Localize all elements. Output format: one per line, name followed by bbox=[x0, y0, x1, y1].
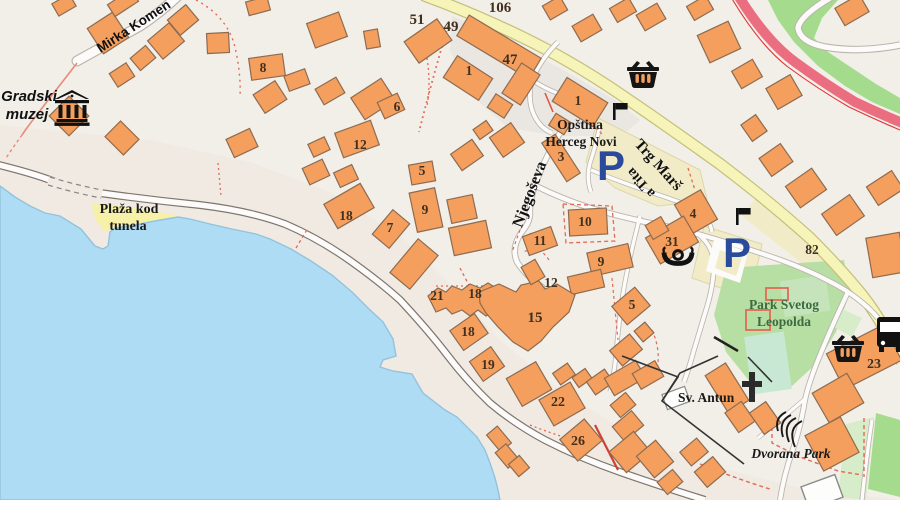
svg-text:muzej: muzej bbox=[6, 106, 49, 123]
svg-text:51: 51 bbox=[410, 12, 425, 28]
svg-text:10: 10 bbox=[578, 214, 592, 229]
svg-text:18: 18 bbox=[339, 208, 353, 223]
svg-text:1: 1 bbox=[466, 63, 473, 78]
svg-text:23: 23 bbox=[867, 357, 881, 372]
svg-text:12: 12 bbox=[544, 275, 558, 290]
svg-text:21: 21 bbox=[430, 288, 444, 303]
svg-text:Sv. Antun: Sv. Antun bbox=[678, 390, 735, 405]
svg-text:Opština: Opština bbox=[557, 117, 603, 132]
svg-text:P: P bbox=[597, 142, 625, 189]
svg-text:18: 18 bbox=[461, 324, 475, 339]
svg-text:3: 3 bbox=[558, 149, 565, 164]
svg-text:4: 4 bbox=[690, 206, 697, 221]
svg-text:49: 49 bbox=[444, 19, 459, 35]
svg-text:12: 12 bbox=[353, 137, 367, 152]
svg-text:82: 82 bbox=[805, 242, 819, 257]
svg-text:11: 11 bbox=[534, 233, 547, 248]
svg-text:Gradski: Gradski bbox=[1, 88, 58, 105]
svg-text:18: 18 bbox=[468, 286, 482, 301]
svg-text:9: 9 bbox=[422, 202, 429, 217]
svg-text:15: 15 bbox=[528, 310, 543, 326]
svg-text:8: 8 bbox=[260, 60, 267, 75]
svg-text:19: 19 bbox=[481, 357, 495, 372]
svg-text:31: 31 bbox=[665, 234, 679, 249]
svg-text:Dvorana Park: Dvorana Park bbox=[750, 446, 830, 461]
svg-text:26: 26 bbox=[571, 434, 585, 449]
svg-text:9: 9 bbox=[598, 254, 605, 269]
svg-text:6: 6 bbox=[394, 99, 401, 114]
svg-text:106: 106 bbox=[489, 0, 512, 16]
svg-text:Leopolda: Leopolda bbox=[757, 314, 811, 329]
svg-text:47: 47 bbox=[503, 52, 519, 68]
svg-text:1: 1 bbox=[575, 93, 582, 108]
svg-text:22: 22 bbox=[551, 395, 565, 410]
svg-text:Plaža kod: Plaža kod bbox=[100, 202, 159, 217]
svg-text:tunela: tunela bbox=[109, 219, 146, 234]
svg-text:5: 5 bbox=[419, 163, 426, 178]
svg-text:Park Svetog: Park Svetog bbox=[749, 297, 819, 312]
svg-text:P: P bbox=[723, 229, 751, 276]
svg-text:7: 7 bbox=[387, 220, 394, 235]
svg-text:5: 5 bbox=[629, 297, 636, 312]
svg-text:Herceg Novi: Herceg Novi bbox=[545, 134, 617, 149]
